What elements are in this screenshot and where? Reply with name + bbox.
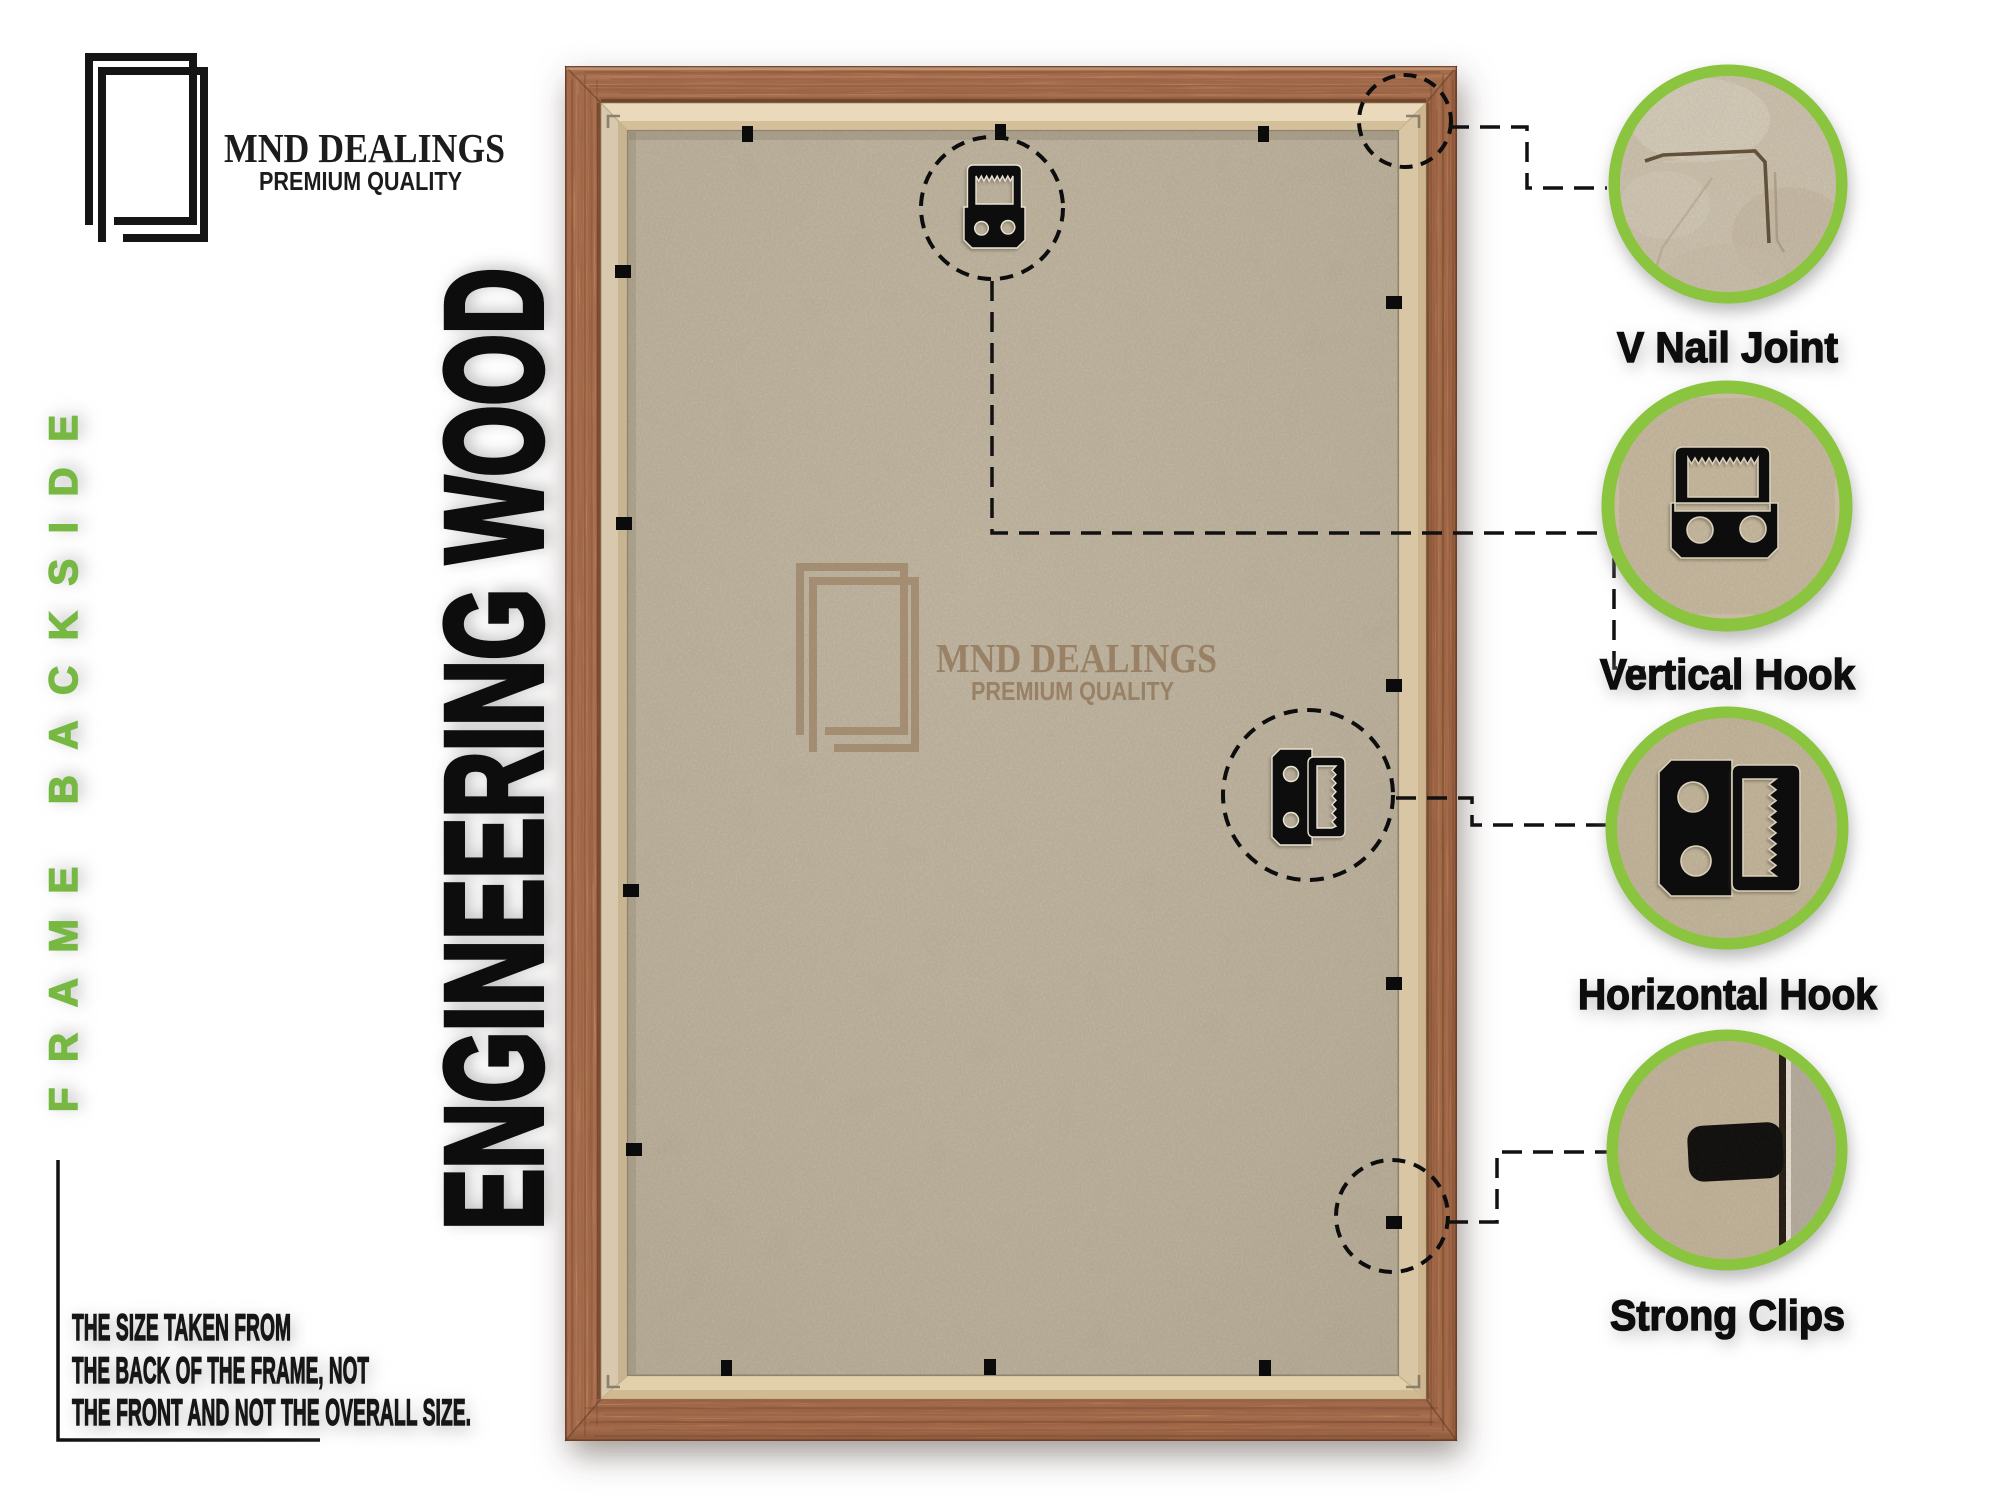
svg-text:Strong Clips: Strong Clips [1610,1292,1845,1340]
svg-text:MND DEALINGS: MND DEALINGS [224,125,505,171]
svg-text:THE BACK OF THE FRAME, NOT: THE BACK OF THE FRAME, NOT [72,1350,369,1391]
svg-text:THE SIZE TAKEN FROM: THE SIZE TAKEN FROM [72,1307,291,1348]
svg-text:Horizontal Hook: Horizontal Hook [1578,971,1877,1019]
svg-text:THE FRONT AND NOT THE OVERALL: THE FRONT AND NOT THE OVERALL SIZE. [72,1392,471,1433]
svg-text:FRAME BACKSIDE: FRAME BACKSIDE [42,391,86,1112]
svg-text:V Nail Joint: V Nail Joint [1617,324,1838,372]
svg-text:PREMIUM QUALITY: PREMIUM QUALITY [259,166,462,196]
svg-text:ENGINEERING WOOD: ENGINEERING WOOD [418,268,571,1230]
svg-text:Vertical Hook: Vertical Hook [1600,651,1855,699]
svg-text:MND DEALINGS: MND DEALINGS [936,635,1217,681]
svg-text:PREMIUM QUALITY: PREMIUM QUALITY [971,676,1174,706]
